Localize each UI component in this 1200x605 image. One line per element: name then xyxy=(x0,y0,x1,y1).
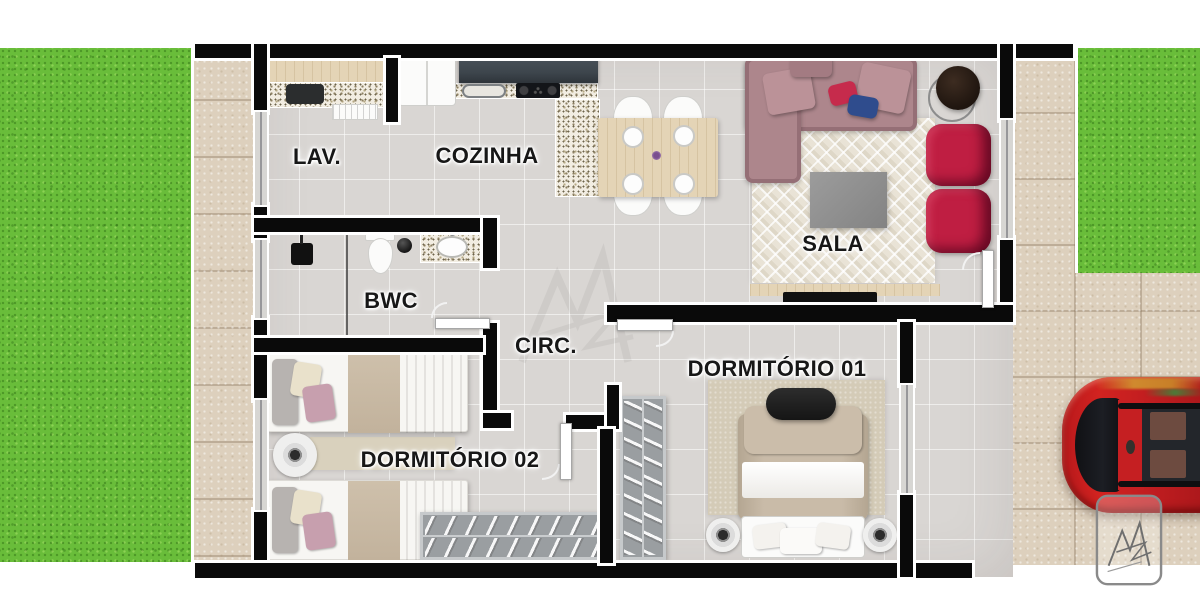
bedside-round-table xyxy=(863,518,897,552)
bedroom2-round-table xyxy=(273,433,317,477)
wall-bwc-south xyxy=(254,338,483,352)
walkway-left xyxy=(194,44,254,572)
laundry-counter-wood xyxy=(267,58,386,84)
bolster-pillow-black xyxy=(766,388,836,420)
floorplan-canvas: LAV. COZINHA SALA BWC CIRC. DORMITÓRIO 0… xyxy=(0,0,1200,605)
plate xyxy=(622,173,644,195)
room-label-cozinha: COZINHA xyxy=(435,143,538,169)
pillow-pink xyxy=(302,511,337,551)
car-antenna xyxy=(1126,440,1135,454)
wall-bwc-east xyxy=(483,218,497,268)
bedroom1-wardrobe xyxy=(620,396,666,560)
sofa-ottoman xyxy=(790,55,832,77)
coffee-table xyxy=(810,172,887,228)
shower-arm xyxy=(300,232,303,244)
drying-rack xyxy=(332,104,378,120)
pillow-pink xyxy=(302,383,337,423)
bwc-door-leaf xyxy=(435,318,490,329)
table-flower xyxy=(652,151,661,160)
hanging-clothes-row xyxy=(425,516,599,535)
room-label-dorm1: DORMITÓRIO 01 xyxy=(688,356,867,382)
wall-left xyxy=(254,44,267,112)
plate xyxy=(673,125,695,147)
kitchen-peninsula-granite xyxy=(555,99,600,197)
car-windshield xyxy=(1075,398,1121,492)
wall-dorm1-east xyxy=(900,322,913,385)
faint-watermark-logo xyxy=(470,180,680,420)
plate xyxy=(673,173,695,195)
bathroom-sink xyxy=(436,236,468,258)
wall-bwc-east xyxy=(483,323,497,417)
round-side-table xyxy=(936,66,980,110)
room-label-dorm2: DORMITÓRIO 02 xyxy=(361,447,540,473)
armchair xyxy=(926,189,991,253)
folded-sheet-band xyxy=(742,462,864,498)
shower-glass-divider xyxy=(346,230,348,336)
hanging-clothes-row xyxy=(425,538,599,557)
dorm1-door-leaf xyxy=(617,319,673,331)
kitchen-upper-cabinet xyxy=(459,56,598,83)
wardrobe-rail xyxy=(423,535,601,537)
bedside-round-table xyxy=(706,518,740,552)
dorm2-door-leaf xyxy=(560,423,572,480)
car-side-window-line xyxy=(1118,403,1200,409)
window-lav xyxy=(255,112,267,205)
wall-left xyxy=(254,318,267,400)
room-label-circ: CIRC. xyxy=(515,333,577,359)
wall-lav-kitchen xyxy=(386,58,398,122)
laundry-tub-sink xyxy=(286,84,324,104)
single-bed xyxy=(267,352,468,432)
room-label-bwc: BWC xyxy=(364,288,418,314)
room-label-lav: LAV. xyxy=(293,144,341,170)
kitchen-sink xyxy=(462,84,506,98)
room-label-sala: SALA xyxy=(802,231,864,257)
wall-corridor-stub xyxy=(607,385,619,429)
hanging-clothes-column xyxy=(624,401,642,555)
bed-sheet-folds xyxy=(388,353,469,433)
foot-pillow xyxy=(814,522,851,550)
grass-right xyxy=(1075,48,1200,273)
wall-top xyxy=(195,44,1073,58)
wall-dorm2-east xyxy=(600,429,613,563)
wall-dorm1-east xyxy=(900,493,913,577)
bed-throw xyxy=(348,353,400,433)
refrigerator xyxy=(398,57,456,106)
wall-corridor-foot xyxy=(483,413,511,428)
wall-right xyxy=(1000,44,1013,120)
wall-bwc-north xyxy=(254,218,497,232)
car-side-window-line xyxy=(1118,481,1200,487)
car-reflection-orange xyxy=(1095,378,1200,389)
car-sunroof-panel xyxy=(1150,412,1186,440)
shower-head xyxy=(291,243,313,265)
car-reflection-green xyxy=(1145,389,1200,396)
cooktop xyxy=(516,83,560,98)
bedroom2-wardrobe xyxy=(420,512,604,560)
front-door-leaf xyxy=(982,250,994,308)
plate xyxy=(622,126,644,148)
window-dorm2 xyxy=(255,400,267,510)
wall-bottom xyxy=(195,563,972,578)
grass-left xyxy=(0,48,194,562)
bathroom-trash-bin xyxy=(397,238,412,253)
watermark-logo xyxy=(1095,493,1163,587)
window-dorm1 xyxy=(901,385,913,493)
hanging-clothes-column xyxy=(644,401,662,555)
bed-throw xyxy=(348,481,400,561)
car-sunroof-panel xyxy=(1150,450,1186,478)
armchair xyxy=(926,124,991,186)
window-bwc xyxy=(255,240,267,318)
window-sala xyxy=(1001,120,1013,238)
